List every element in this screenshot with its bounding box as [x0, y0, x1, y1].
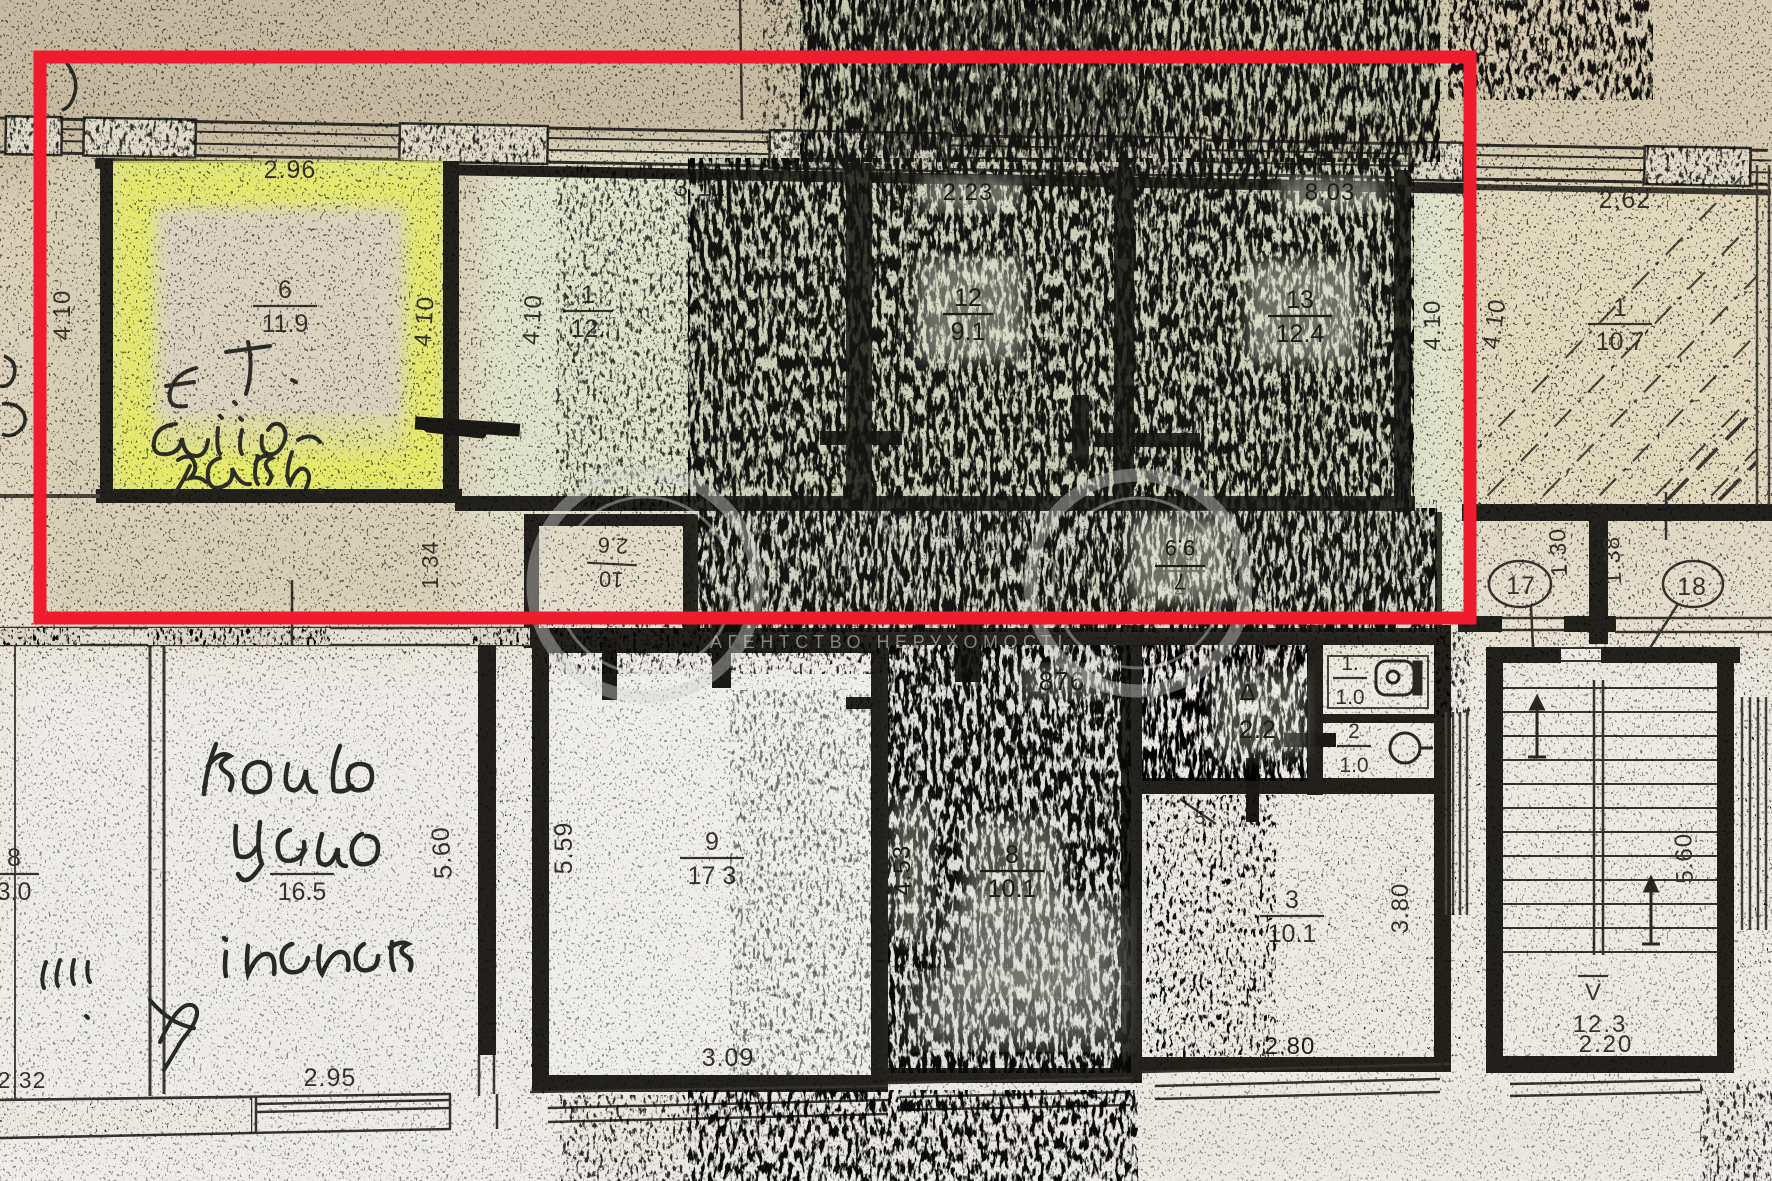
svg-text:8.03: 8.03	[1305, 179, 1356, 206]
svg-text:Δ: Δ	[1239, 679, 1256, 706]
svg-text:13: 13	[1286, 286, 1314, 314]
svg-text:8: 8	[1005, 841, 1019, 869]
svg-text:4.53: 4.53	[888, 844, 917, 896]
svg-text:12.4: 12.4	[1276, 320, 1325, 348]
svg-text:7: 7	[1174, 569, 1186, 594]
svg-text:9.9: 9.9	[1165, 535, 1196, 560]
svg-text:АГЕНТСТВО НЕРУХОМОСТІ: АГЕНТСТВО НЕРУХОМОСТІ	[710, 632, 1068, 652]
svg-text:12: 12	[954, 284, 982, 312]
svg-text:9.1: 9.1	[951, 318, 986, 346]
svg-text:2.23: 2.23	[943, 179, 994, 206]
svg-text:2.2: 2.2	[1239, 716, 1277, 744]
svg-text:10.1: 10.1	[988, 875, 1037, 903]
